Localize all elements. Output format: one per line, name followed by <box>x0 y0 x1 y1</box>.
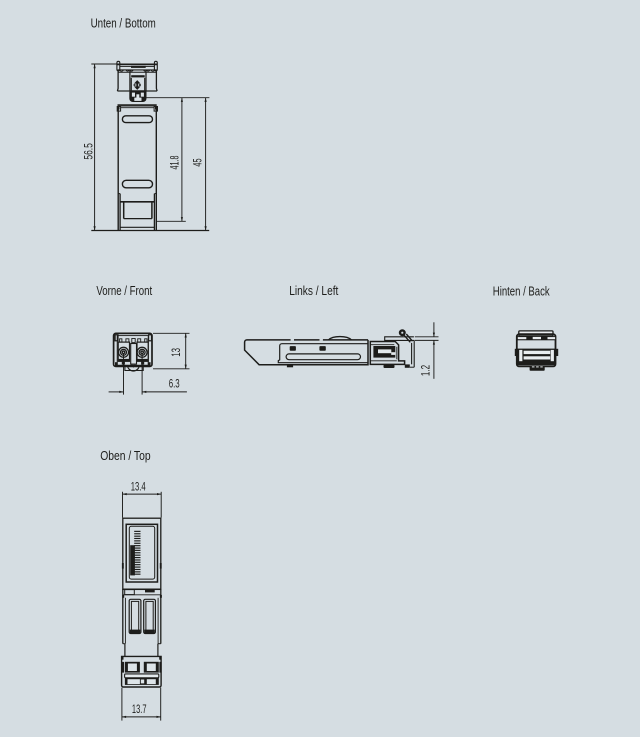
svg-text:13.7: 13.7 <box>132 702 147 716</box>
svg-text:Unten / Bottom: Unten / Bottom <box>91 16 156 31</box>
svg-text:45: 45 <box>191 158 205 166</box>
svg-text:Vorne / Front: Vorne / Front <box>96 283 152 298</box>
svg-text:Hinten / Back: Hinten / Back <box>493 284 550 299</box>
svg-text:13: 13 <box>169 348 183 357</box>
svg-text:41.8: 41.8 <box>168 155 182 169</box>
svg-text:13.4: 13.4 <box>131 480 146 494</box>
svg-text:Oben / Top: Oben / Top <box>100 448 150 463</box>
svg-text:56.5: 56.5 <box>82 143 96 160</box>
svg-text:Links / Left: Links / Left <box>289 283 338 298</box>
svg-text:6.3: 6.3 <box>169 377 180 391</box>
svg-text:1.2: 1.2 <box>418 365 432 376</box>
